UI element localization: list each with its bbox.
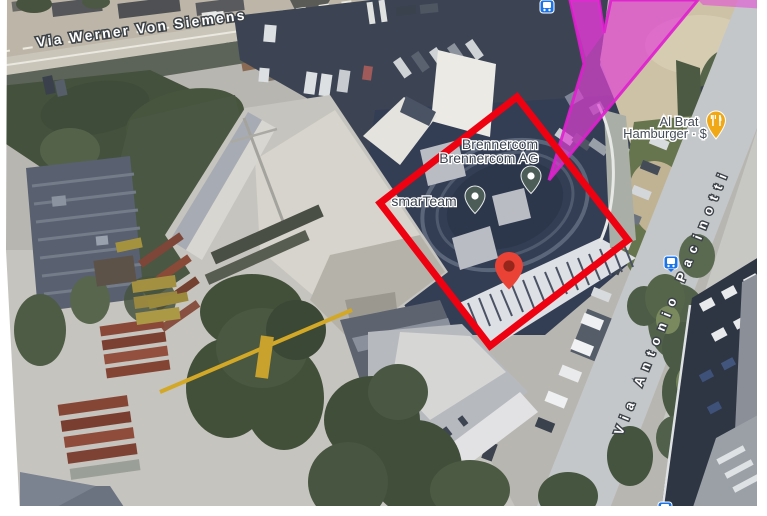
svg-text:smarTeam: smarTeam [391,193,456,209]
svg-text:Brennercom AG: Brennercom AG [439,150,539,166]
svg-text:Hamburger · $: Hamburger · $ [623,126,708,141]
